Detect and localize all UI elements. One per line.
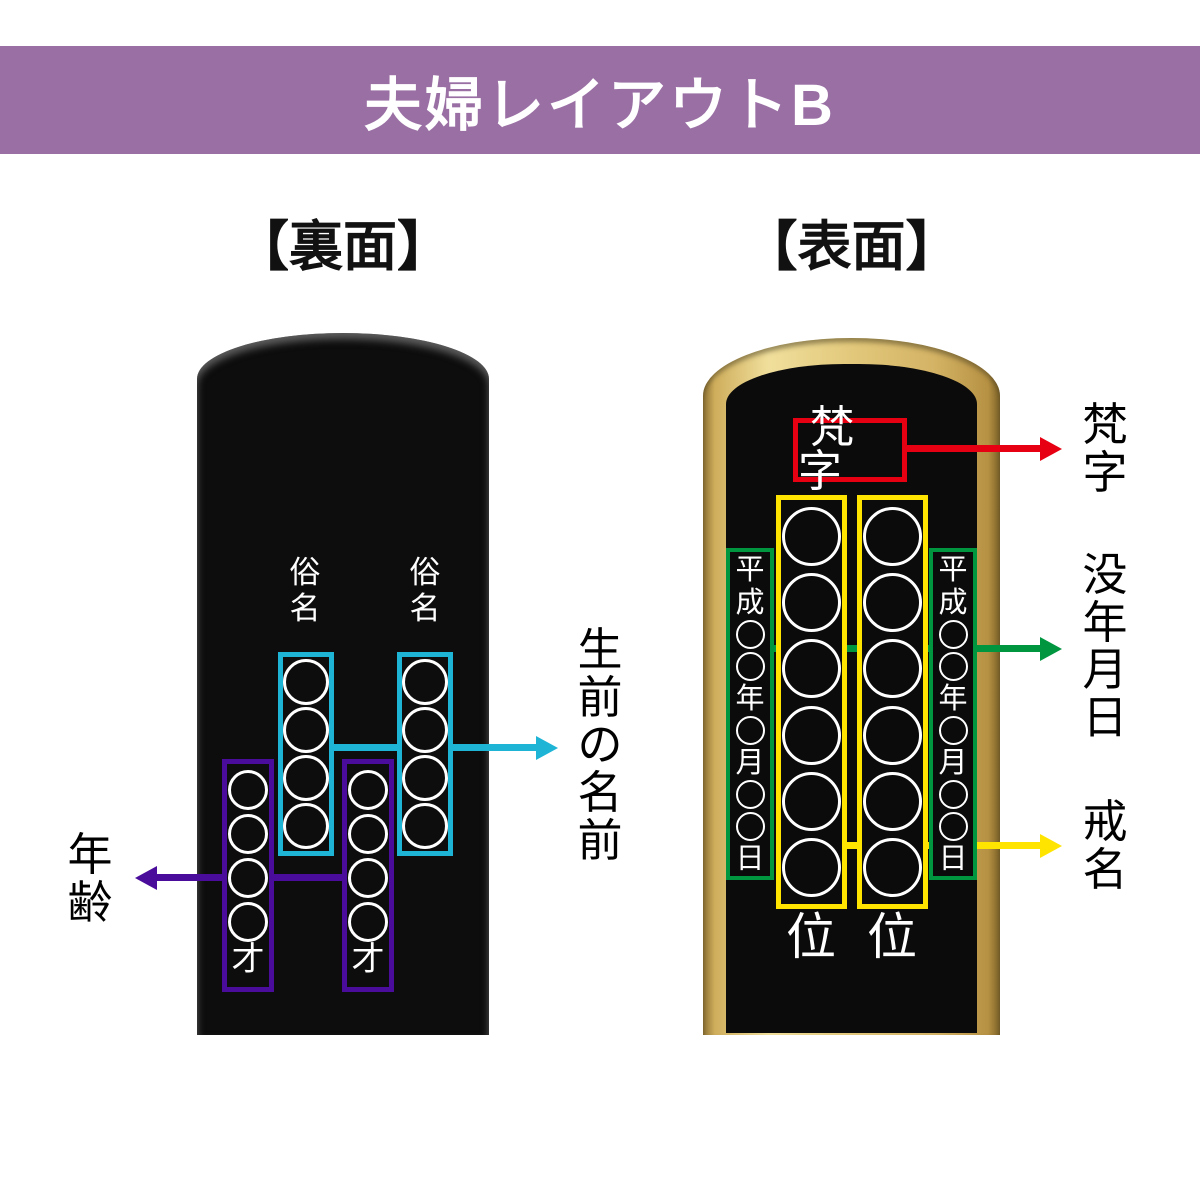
circle-placeholder xyxy=(782,573,841,632)
vertical-char: 年 xyxy=(735,683,764,713)
front-side-label: 【表面】 xyxy=(703,214,1000,280)
circle-placeholder xyxy=(863,838,922,897)
circle-placeholder xyxy=(228,814,268,854)
annotation-death-date: 没年月日 xyxy=(1079,551,1131,742)
vertical-char: 名 xyxy=(290,592,321,628)
name-circles-right xyxy=(402,657,448,851)
title-bar: 夫婦レイアウトB xyxy=(0,46,1200,154)
vertical-char: 名 xyxy=(410,592,441,628)
circle-placeholder xyxy=(863,507,922,566)
vertical-char: 梵 xyxy=(1082,401,1127,449)
circle-placeholder xyxy=(782,706,841,765)
death-date-box-right: 平成年月日 xyxy=(929,548,977,880)
age-box-left: 才 xyxy=(222,759,274,992)
circle-placeholder xyxy=(939,812,968,841)
kaimyo-box-left xyxy=(776,495,847,909)
kaimyo-circles-left xyxy=(781,500,842,904)
vertical-char: 没 xyxy=(1082,551,1127,599)
vertical-char: 名 xyxy=(577,769,622,817)
kaimyo-circles-right xyxy=(862,500,923,904)
circle-placeholder xyxy=(228,902,268,942)
zokumyo-label-wife: 俗名 xyxy=(406,556,444,627)
circle-placeholder xyxy=(939,716,968,745)
circle-placeholder xyxy=(863,573,922,632)
vertical-char: 平 xyxy=(735,554,764,584)
annotation-name-before-death: 生前の名前 xyxy=(574,626,626,864)
circle-placeholder xyxy=(782,772,841,831)
bonji-box: 梵字 xyxy=(793,418,907,482)
age-suffix-label: 才 xyxy=(352,942,385,975)
name-arrowhead-icon xyxy=(536,736,558,760)
bonji-arrow-line xyxy=(895,445,1040,452)
circle-placeholder xyxy=(348,770,388,810)
vertical-char: 字 xyxy=(1082,449,1127,497)
circle-placeholder xyxy=(283,755,329,801)
vertical-char: 年 xyxy=(1082,599,1127,647)
circle-placeholder xyxy=(348,814,388,854)
back-side-label: 【裏面】 xyxy=(197,214,489,280)
circle-placeholder xyxy=(736,812,765,841)
age-arrowhead-icon xyxy=(135,866,157,890)
age-suffix-label: 才 xyxy=(232,942,265,975)
death-date-text-left: 平成年月日 xyxy=(730,552,770,876)
age-circles-left xyxy=(228,770,268,942)
circle-placeholder xyxy=(228,770,268,810)
age-box-right: 才 xyxy=(342,759,394,992)
circle-placeholder xyxy=(736,652,765,681)
circle-placeholder xyxy=(283,707,329,753)
circle-placeholder xyxy=(348,902,388,942)
circle-placeholder xyxy=(736,716,765,745)
annotation-bonji: 梵字 xyxy=(1079,401,1131,496)
vertical-char: の xyxy=(577,721,622,769)
circle-placeholder xyxy=(402,803,448,849)
circle-placeholder xyxy=(402,755,448,801)
age-circles-right xyxy=(348,770,388,942)
circle-placeholder xyxy=(228,858,268,898)
circle-placeholder xyxy=(939,620,968,649)
vertical-char: 月 xyxy=(735,747,764,777)
circle-placeholder xyxy=(863,639,922,698)
vertical-char: 俗 xyxy=(290,556,321,592)
vertical-char: 成 xyxy=(938,587,967,617)
name-box-right xyxy=(397,652,453,856)
rank-label-left: 位 xyxy=(780,912,842,962)
death-date-text-right: 平成年月日 xyxy=(933,552,973,876)
circle-placeholder xyxy=(348,858,388,898)
circle-placeholder xyxy=(939,780,968,809)
circle-placeholder xyxy=(782,639,841,698)
page-title: 夫婦レイアウトB xyxy=(364,58,836,142)
circle-placeholder xyxy=(939,652,968,681)
kaimyo-box-right xyxy=(857,495,928,909)
vertical-char: 前 xyxy=(577,817,622,865)
vertical-char: 月 xyxy=(938,747,967,777)
circle-placeholder xyxy=(736,620,765,649)
annotation-kaimyo: 戒名 xyxy=(1079,798,1131,893)
vertical-char: 戒 xyxy=(1082,798,1127,846)
death-date-arrowhead-icon xyxy=(1040,637,1062,661)
circle-placeholder xyxy=(283,659,329,705)
vertical-char: 成 xyxy=(735,587,764,617)
bonji-box-label: 梵字 xyxy=(798,406,902,494)
vertical-char: 前 xyxy=(577,674,622,722)
name-circles-left xyxy=(283,657,329,851)
vertical-char: 名 xyxy=(1082,846,1127,894)
bonji-arrowhead-icon xyxy=(1040,437,1062,461)
circle-placeholder xyxy=(863,706,922,765)
infographic-canvas: 夫婦レイアウトB 【裏面】 【表面】 俗名 俗名 才 才 梵字 xyxy=(0,0,1200,1200)
vertical-char: 平 xyxy=(938,554,967,584)
name-box-left xyxy=(278,652,334,856)
zokumyo-label-husband: 俗名 xyxy=(286,556,324,627)
vertical-char: 年 xyxy=(938,683,967,713)
circle-placeholder xyxy=(863,772,922,831)
vertical-char: 日 xyxy=(938,843,967,873)
vertical-char: 年 xyxy=(67,831,112,879)
circle-placeholder xyxy=(402,659,448,705)
kaimyo-arrowhead-icon xyxy=(1040,834,1062,858)
vertical-char: 日 xyxy=(735,843,764,873)
vertical-char: 俗 xyxy=(410,556,441,592)
annotation-age: 年齢 xyxy=(64,831,116,926)
circle-placeholder xyxy=(782,507,841,566)
rank-label-right: 位 xyxy=(861,912,923,962)
circle-placeholder xyxy=(782,838,841,897)
circle-placeholder xyxy=(402,707,448,753)
vertical-char: 齢 xyxy=(67,879,112,927)
vertical-char: 生 xyxy=(577,626,622,674)
vertical-char: 月 xyxy=(1082,646,1127,694)
circle-placeholder xyxy=(283,803,329,849)
circle-placeholder xyxy=(736,780,765,809)
vertical-char: 日 xyxy=(1082,694,1127,742)
death-date-box-left: 平成年月日 xyxy=(726,548,774,880)
